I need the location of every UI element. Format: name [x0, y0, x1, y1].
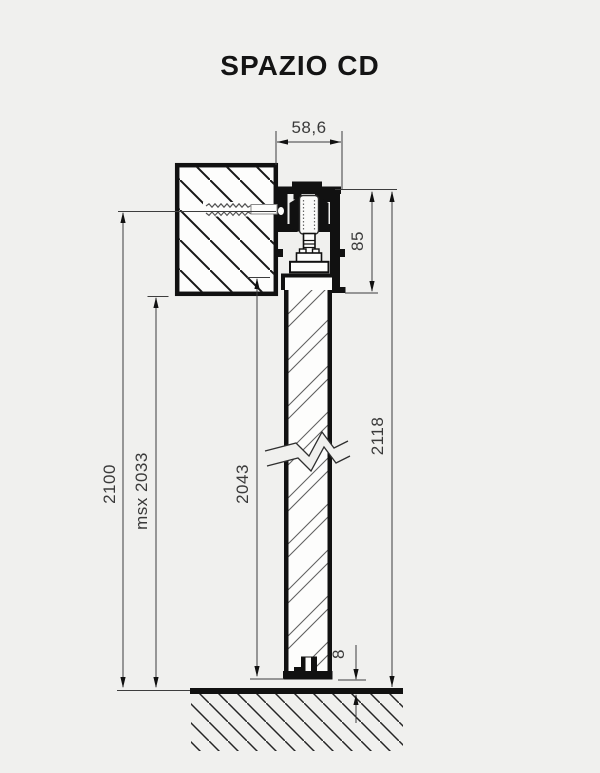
wall-section [118, 163, 278, 296]
fixing-screw-head [278, 207, 284, 215]
roller-wheel [300, 196, 319, 235]
dim-label-install-height: 2100 [100, 464, 119, 504]
door-edge-left [284, 285, 289, 675]
carriage-plate-left [290, 199, 300, 232]
dim-label-width: 58,6 [291, 118, 326, 137]
track-screw-left [277, 249, 284, 257]
fascia-foot [340, 287, 346, 293]
roller-carriage [290, 193, 329, 273]
track-screw-right [339, 249, 345, 257]
ground-hatch [191, 694, 403, 751]
drawing-canvas: SPAZIO CD [0, 0, 600, 773]
dim-label-total-height: 2118 [368, 417, 387, 456]
wall-hatch [180, 168, 274, 292]
dim-label-max-door: msx 2033 [132, 452, 151, 530]
carriage-plate-right [319, 199, 329, 232]
dim-label-track-height: 85 [348, 231, 367, 251]
door-panel [265, 266, 350, 701]
floor [117, 688, 403, 751]
door-edge-right [328, 285, 333, 675]
dim-label-door-height: 2043 [233, 464, 252, 504]
floor-line [190, 688, 403, 694]
hanger-bolt [290, 234, 329, 273]
hanger-plate [290, 262, 329, 273]
door-top-profile [283, 276, 334, 291]
section-drawing: 58,6 85 2118 2043 msx 2033 2100 8 [0, 0, 600, 773]
dim-label-floor-gap: 8 [329, 649, 348, 659]
